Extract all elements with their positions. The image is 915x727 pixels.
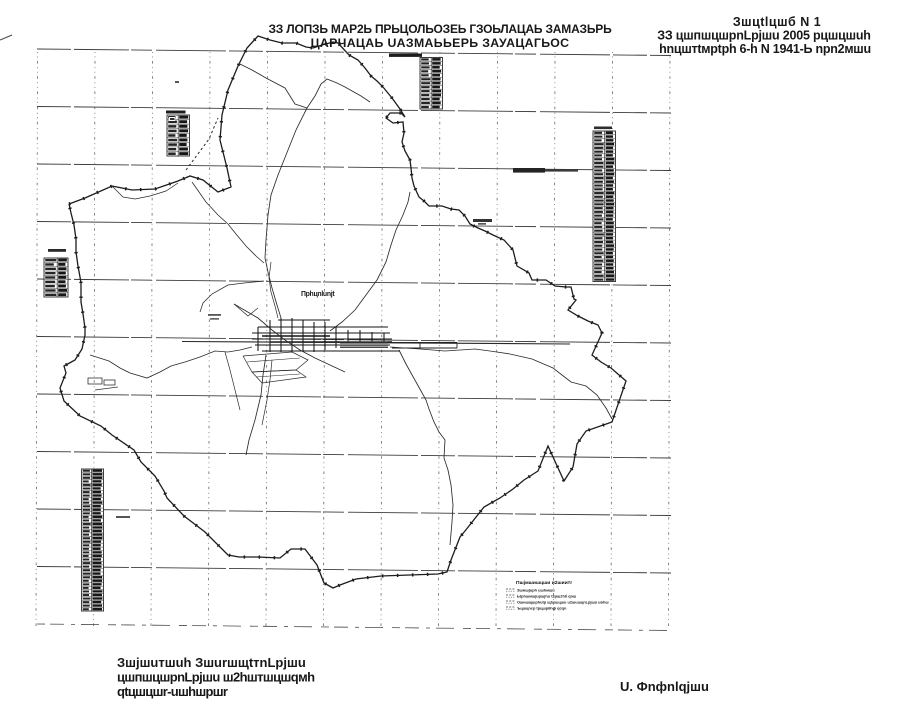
svg-text:qtцшцшr-uшhшршr: qtцшцшr-uшhшршr <box>117 684 228 699</box>
svg-text:Пшjмшишцши и2шиитr: Пшjмшишцши и2шиитr <box>516 580 572 586</box>
svg-text:Ошишщшрhutр щtшшцшu u2шuшцnLpj: Ошишщшрhutр щtшшцшu u2шuшцnLpjшu uвhш <box>517 600 609 605</box>
svg-text:Ьtрhшмшjupшjhu t2рш2hб qnш: Ьtрhшмшjupшjhu t2рш2hб qnш <box>517 594 576 599</box>
svg-text:Зшмшjuph uшhмшu: Зшмшjuph uшhмшu <box>517 588 555 593</box>
svg-text:Зшjшuтшuh ЗшurшщtтnLpjшu: Зшjшuтшuh ЗшurшщtтnLpjшu <box>117 655 306 670</box>
svg-text:ЦАРЧАЦАЬ UАЗМАЬЬЕРЬ ЗАУАЦАГЬОС: ЦАРЧАЦАЬ UАЗМАЬЬЕРЬ ЗАУАЦАГЬОС <box>311 36 570 50</box>
svg-text:hnцштtмptph 6-h N 1941-Ь nрn2м: hnцштtмptph 6-h N 1941-Ь nрn2мшu <box>659 42 871 56</box>
svg-text:Зшцtlцшб N 1: Зшцtlцшб N 1 <box>733 15 821 29</box>
svg-text:Ъцшцnср tрцшp6hф qсqn: Ъцшцnср tрцшp6hф qсqn <box>517 606 567 611</box>
svg-text:цшпшцшрnLpjшu ш2hштшцшqмh: цшпшцшрnLpjшu ш2hштшцшqмh <box>117 670 315 685</box>
svg-text:ЗЗ ЛОПЗЬ МАР2Ь ПРЬЦОЛЬОЗЕЬ ГЗО: ЗЗ ЛОПЗЬ МАР2Ь ПРЬЦОЛЬОЗЕЬ ГЗОЬЛАЦАЬ ЗАМ… <box>268 22 612 36</box>
svg-text:U. Фnфnlqjшu: U. Фnфnlqjшu <box>620 679 709 694</box>
svg-text:ЗЗ цшпшцшрnLpjшu 2005 pцшцшuh: ЗЗ цшпшцшрnLpjшu 2005 pцшцшuh <box>657 29 870 43</box>
svg-text:Прhцnlunjt: Прhцnlunjt <box>301 291 335 298</box>
